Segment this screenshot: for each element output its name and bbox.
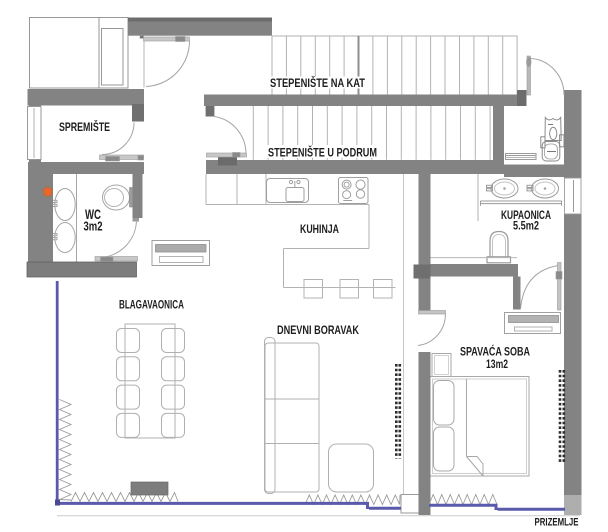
svg-text:KUHINJA: KUHINJA (300, 224, 339, 236)
svg-text:DNEVNI BORAVAK: DNEVNI BORAVAK (277, 325, 360, 337)
svg-text:SPAVAĆA SOBA: SPAVAĆA SOBA (460, 346, 530, 359)
svg-text:3m2: 3m2 (84, 219, 103, 234)
svg-text:SPREMIŠTE: SPREMIŠTE (59, 121, 110, 134)
svg-text:BLAGAVAONICA: BLAGAVAONICA (119, 300, 184, 312)
svg-text:13m2: 13m2 (486, 359, 508, 371)
svg-text:STEPENIŠTE NA KAT: STEPENIŠTE NA KAT (270, 77, 365, 90)
svg-text:5.5m2: 5.5m2 (513, 221, 539, 233)
svg-text:PRIZEMLJE: PRIZEMLJE (535, 517, 579, 529)
svg-text:STEPENIŠTE U PODRUM: STEPENIŠTE U PODRUM (268, 147, 377, 160)
